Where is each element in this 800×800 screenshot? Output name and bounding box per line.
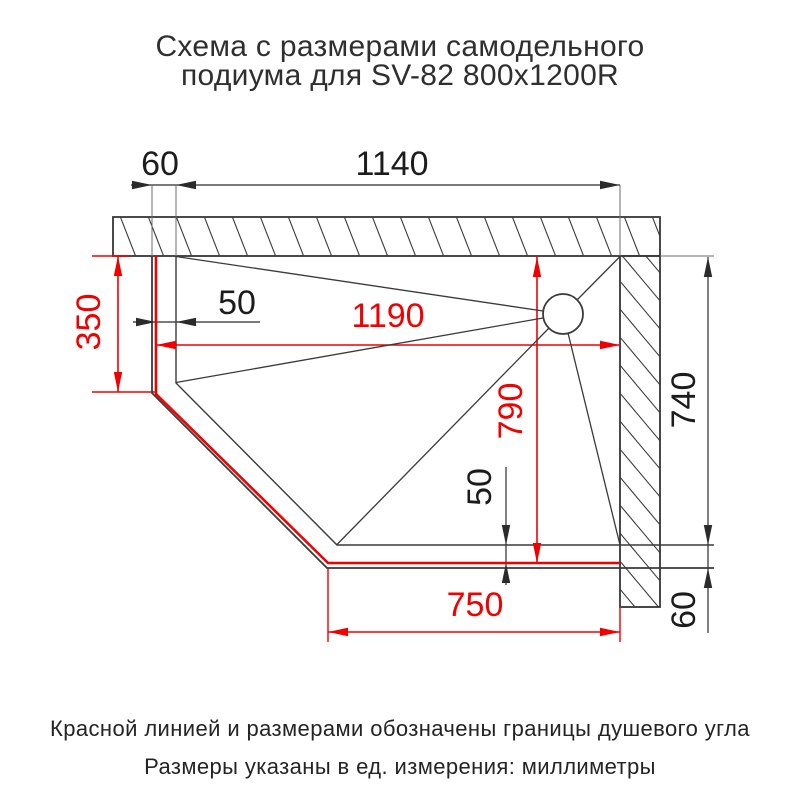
dim-bottom-red-width: 750 [447,586,504,624]
dim-arrowhead [704,568,712,588]
dim-bottom-inset: 50 [461,468,499,506]
dim-left-red-height: 350 [70,294,108,351]
title-line-2: подиума для SV-82 800x1200R [181,59,619,92]
scheme-canvas: Схема с размерами самодельного подиума д… [0,0,800,800]
dim-arrowhead [600,181,620,189]
dim-arrowhead [176,181,196,189]
dim-red-width: 1190 [351,297,424,335]
dim-arrowhead [533,257,541,277]
right-wall [620,256,660,607]
dim-red-depth: 790 [492,383,530,440]
footer-note-1: Красной линией и размерами обозначены гр… [50,716,750,741]
dim-inner-width: 1140 [355,145,428,183]
hatch-line [92,216,108,257]
dim-bottom-curb: 60 [665,591,703,629]
dim-arrowhead [600,628,620,636]
dim-arrowhead [136,318,156,326]
dim-arrowhead [502,525,510,545]
footer-note-2: Размеры указаны в ед. измерения: миллиме… [144,754,656,779]
dim-top-curb: 60 [141,145,179,183]
dim-arrowhead [600,341,620,349]
dim-left-inset: 50 [218,284,256,322]
dim-arrowhead [156,341,176,349]
dim-arrowhead [533,543,541,563]
dim-arrowhead [114,256,122,276]
top-wall [113,217,660,256]
dim-arrowhead [704,257,712,277]
dim-arrowhead [114,372,122,392]
podium-dimension-scheme: Схема с размерами самодельного подиума д… [0,0,800,800]
dim-arrowhead [502,563,510,583]
dim-inner-depth: 740 [665,372,703,429]
dim-arrowhead [704,525,712,545]
slope-line [577,257,620,301]
drain-icon [543,294,583,334]
dim-arrowhead [328,628,348,636]
dim-arrowhead [176,318,196,326]
slope-line [568,333,620,545]
